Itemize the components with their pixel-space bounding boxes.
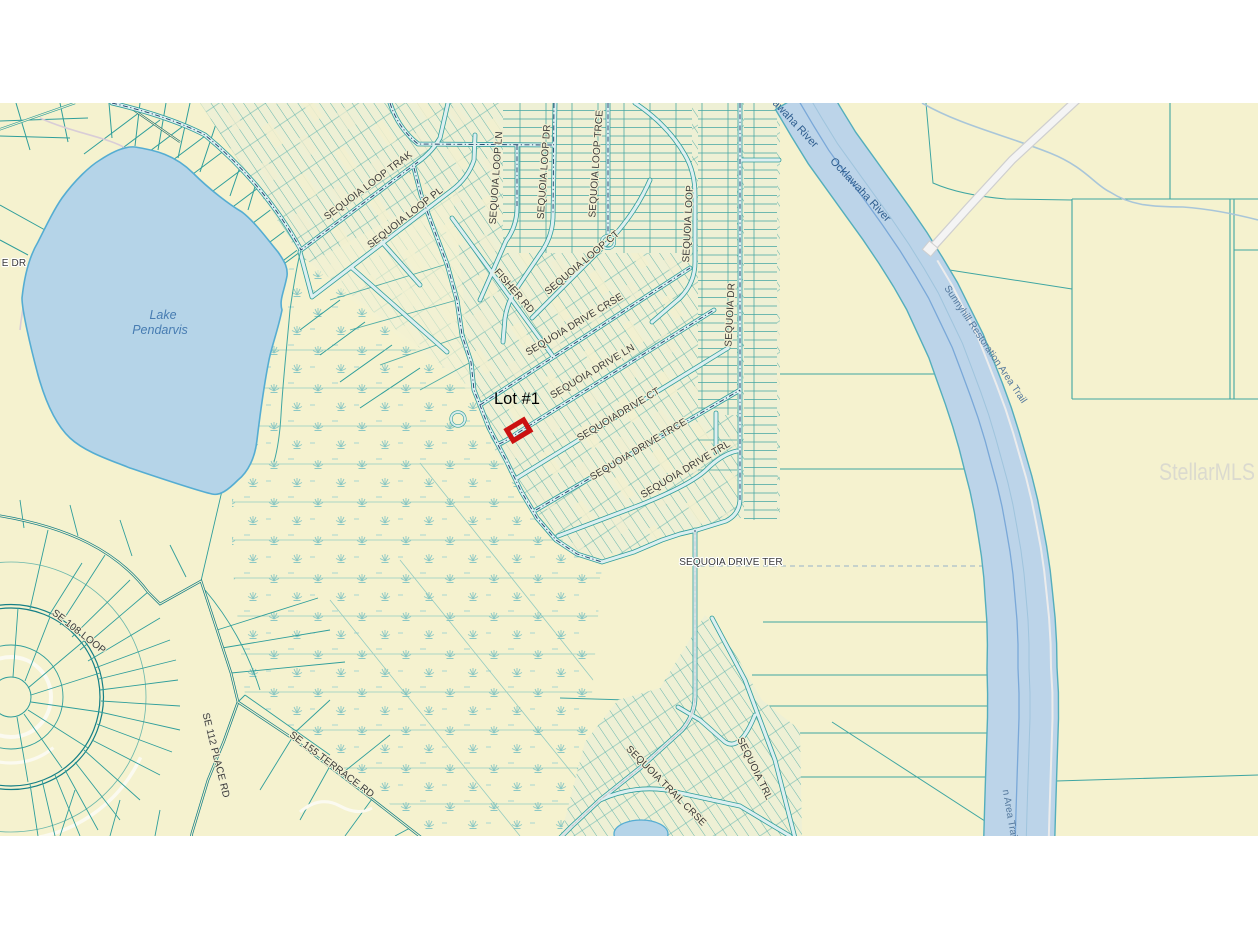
svg-text:E DR: E DR <box>2 258 27 269</box>
svg-text:Lot #1: Lot #1 <box>494 390 540 408</box>
svg-text:SEQUOIA DRIVE TER: SEQUOIA DRIVE TER <box>679 557 783 568</box>
svg-text:Lake: Lake <box>149 308 176 322</box>
svg-text:Pendarvis: Pendarvis <box>132 323 188 337</box>
svg-text:StellarMLS: StellarMLS <box>1159 459 1255 486</box>
